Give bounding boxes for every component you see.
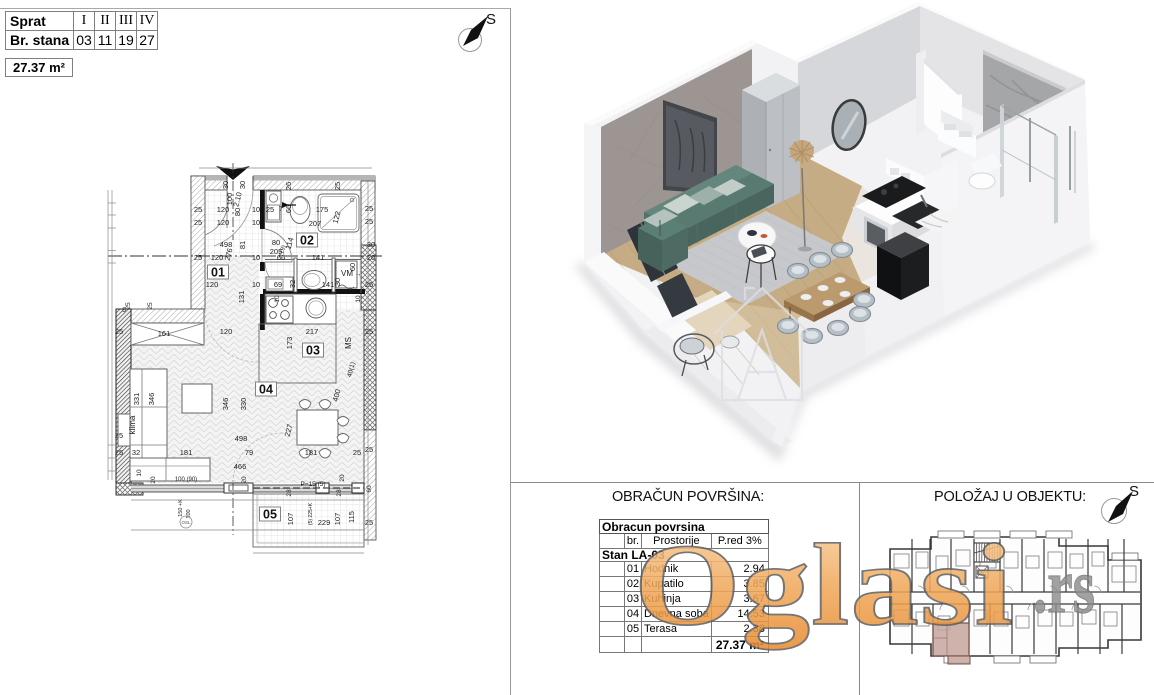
svg-text:141: 141 bbox=[322, 280, 335, 289]
svg-text:173: 173 bbox=[285, 337, 294, 350]
svg-text:161: 161 bbox=[158, 329, 171, 338]
svg-text:120: 120 bbox=[217, 218, 230, 227]
svg-text:30: 30 bbox=[333, 278, 342, 286]
svg-text:03: 03 bbox=[306, 344, 320, 358]
svg-text:10: 10 bbox=[136, 469, 143, 477]
svg-text:20: 20 bbox=[241, 476, 248, 484]
svg-text:81: 81 bbox=[238, 241, 247, 249]
svg-text:28: 28 bbox=[336, 489, 343, 497]
svg-text:181: 181 bbox=[180, 448, 193, 457]
svg-text:OSL: OSL bbox=[181, 520, 191, 525]
svg-text:25: 25 bbox=[266, 205, 274, 214]
svg-text:120: 120 bbox=[206, 280, 219, 289]
svg-text:25: 25 bbox=[365, 518, 373, 527]
svg-text:120: 120 bbox=[217, 205, 230, 214]
svg-text:66: 66 bbox=[284, 205, 293, 213]
svg-text:10: 10 bbox=[252, 280, 260, 289]
svg-text:25: 25 bbox=[333, 182, 342, 190]
svg-text:04: 04 bbox=[259, 383, 273, 397]
svg-text:MS: MS bbox=[344, 337, 353, 349]
svg-text:80: 80 bbox=[272, 238, 280, 247]
svg-text:181: 181 bbox=[305, 448, 318, 457]
svg-text:30: 30 bbox=[221, 181, 230, 189]
svg-text:175: 175 bbox=[316, 205, 329, 214]
svg-text:107: 107 bbox=[333, 513, 342, 526]
svg-text:10: 10 bbox=[274, 295, 281, 303]
svg-text:20: 20 bbox=[367, 253, 375, 262]
svg-text:25: 25 bbox=[365, 445, 373, 454]
svg-text:10: 10 bbox=[252, 253, 260, 262]
svg-text:25: 25 bbox=[194, 205, 202, 214]
svg-text:05: 05 bbox=[263, 508, 277, 522]
svg-text:28: 28 bbox=[286, 489, 293, 497]
svg-text:10: 10 bbox=[252, 218, 260, 227]
svg-text:20: 20 bbox=[150, 476, 157, 484]
svg-text:207: 207 bbox=[309, 219, 322, 228]
svg-text:25: 25 bbox=[115, 327, 123, 336]
svg-text:25: 25 bbox=[194, 253, 202, 262]
svg-text:217: 217 bbox=[306, 327, 319, 336]
svg-text:7: 7 bbox=[279, 204, 283, 213]
svg-text:25: 25 bbox=[147, 302, 154, 310]
svg-text:30: 30 bbox=[238, 181, 247, 189]
svg-text:69: 69 bbox=[274, 280, 282, 289]
svg-text:25: 25 bbox=[365, 217, 373, 226]
svg-text:466: 466 bbox=[234, 462, 247, 471]
svg-text:79: 79 bbox=[245, 448, 253, 457]
svg-text:141: 141 bbox=[312, 253, 325, 262]
svg-text:120: 120 bbox=[220, 327, 233, 336]
svg-text:26: 26 bbox=[284, 182, 293, 190]
svg-text:25: 25 bbox=[365, 327, 373, 336]
svg-text:25: 25 bbox=[115, 448, 123, 457]
svg-text:229: 229 bbox=[318, 518, 331, 527]
svg-text:120: 120 bbox=[211, 253, 224, 262]
svg-text:10: 10 bbox=[252, 205, 260, 214]
svg-text:32: 32 bbox=[132, 448, 140, 457]
svg-text:P=15 (5): P=15 (5) bbox=[300, 481, 325, 488]
svg-text:331: 331 bbox=[132, 393, 141, 406]
svg-text:25: 25 bbox=[365, 204, 373, 213]
svg-text:klima: klima bbox=[128, 415, 137, 434]
svg-text:150 +K: 150 +K bbox=[178, 499, 184, 517]
svg-text:30: 30 bbox=[367, 240, 375, 249]
svg-text:25: 25 bbox=[365, 280, 373, 289]
svg-text:498: 498 bbox=[235, 434, 248, 443]
svg-text:25: 25 bbox=[353, 448, 361, 457]
svg-text:107: 107 bbox=[286, 513, 295, 526]
svg-text:25: 25 bbox=[125, 302, 132, 310]
svg-text:25: 25 bbox=[115, 431, 123, 440]
svg-text:131: 131 bbox=[237, 291, 246, 304]
svg-text:Oglasi: Oglasi bbox=[634, 520, 1014, 650]
svg-text:25: 25 bbox=[194, 218, 202, 227]
svg-text:346: 346 bbox=[147, 393, 156, 406]
svg-text:330: 330 bbox=[239, 398, 248, 411]
svg-text:10: 10 bbox=[355, 295, 362, 303]
svg-text:60: 60 bbox=[366, 485, 373, 493]
svg-text:01: 01 bbox=[211, 266, 225, 280]
svg-text:100 (90): 100 (90) bbox=[175, 477, 197, 483]
svg-text:32: 32 bbox=[288, 280, 297, 288]
svg-text:346: 346 bbox=[221, 398, 230, 411]
svg-text:66: 66 bbox=[277, 253, 285, 262]
svg-text:(5) 225+K: (5) 225+K bbox=[308, 502, 314, 525]
svg-text:02: 02 bbox=[300, 234, 314, 248]
svg-text:20: 20 bbox=[339, 474, 346, 482]
svg-text:115: 115 bbox=[347, 511, 356, 523]
svg-text:80: 80 bbox=[233, 208, 242, 216]
svg-text:→: → bbox=[355, 271, 362, 278]
svg-text:VM: VM bbox=[341, 269, 353, 278]
svg-text:.rs: .rs bbox=[1033, 542, 1095, 629]
